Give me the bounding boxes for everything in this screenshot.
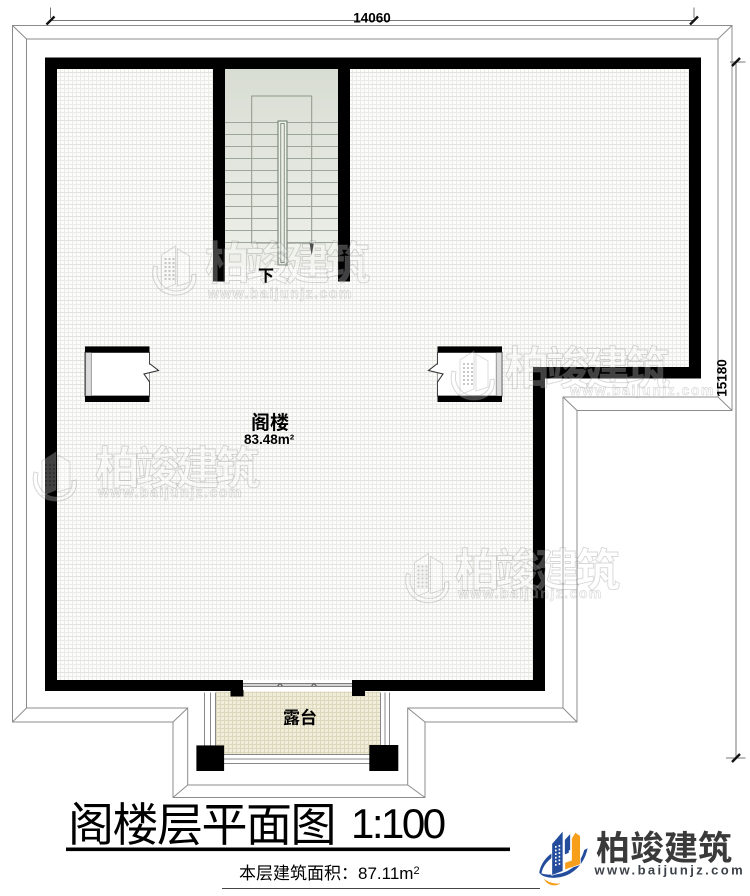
svg-text:本层建筑面积：87.11m2: 本层建筑面积：87.11m2 — [239, 859, 420, 884]
svg-text:下: 下 — [258, 262, 274, 286]
svg-text:www.baijunjz.com: www.baijunjz.com — [207, 285, 353, 301]
svg-text:www.baijunjz.com: www.baijunjz.com — [569, 382, 715, 398]
svg-text:www.baijunjz.com: www.baijunjz.com — [457, 585, 603, 601]
svg-text:83.48m²: 83.48m² — [244, 432, 295, 447]
svg-text:阁楼层平面图: 阁楼层平面图 — [68, 789, 335, 855]
svg-text:1:100: 1:100 — [351, 800, 445, 847]
svg-text:阁楼: 阁楼 — [251, 408, 289, 435]
svg-text:14060: 14060 — [353, 11, 391, 26]
svg-text:www.baijunjz.com: www.baijunjz.com — [594, 863, 746, 878]
svg-text:www.baijunjz.com: www.baijunjz.com — [97, 484, 243, 500]
svg-text:柏竣建筑: 柏竣建筑 — [205, 227, 370, 292]
svg-text:露台: 露台 — [283, 704, 317, 729]
svg-text:15180: 15180 — [715, 359, 730, 397]
